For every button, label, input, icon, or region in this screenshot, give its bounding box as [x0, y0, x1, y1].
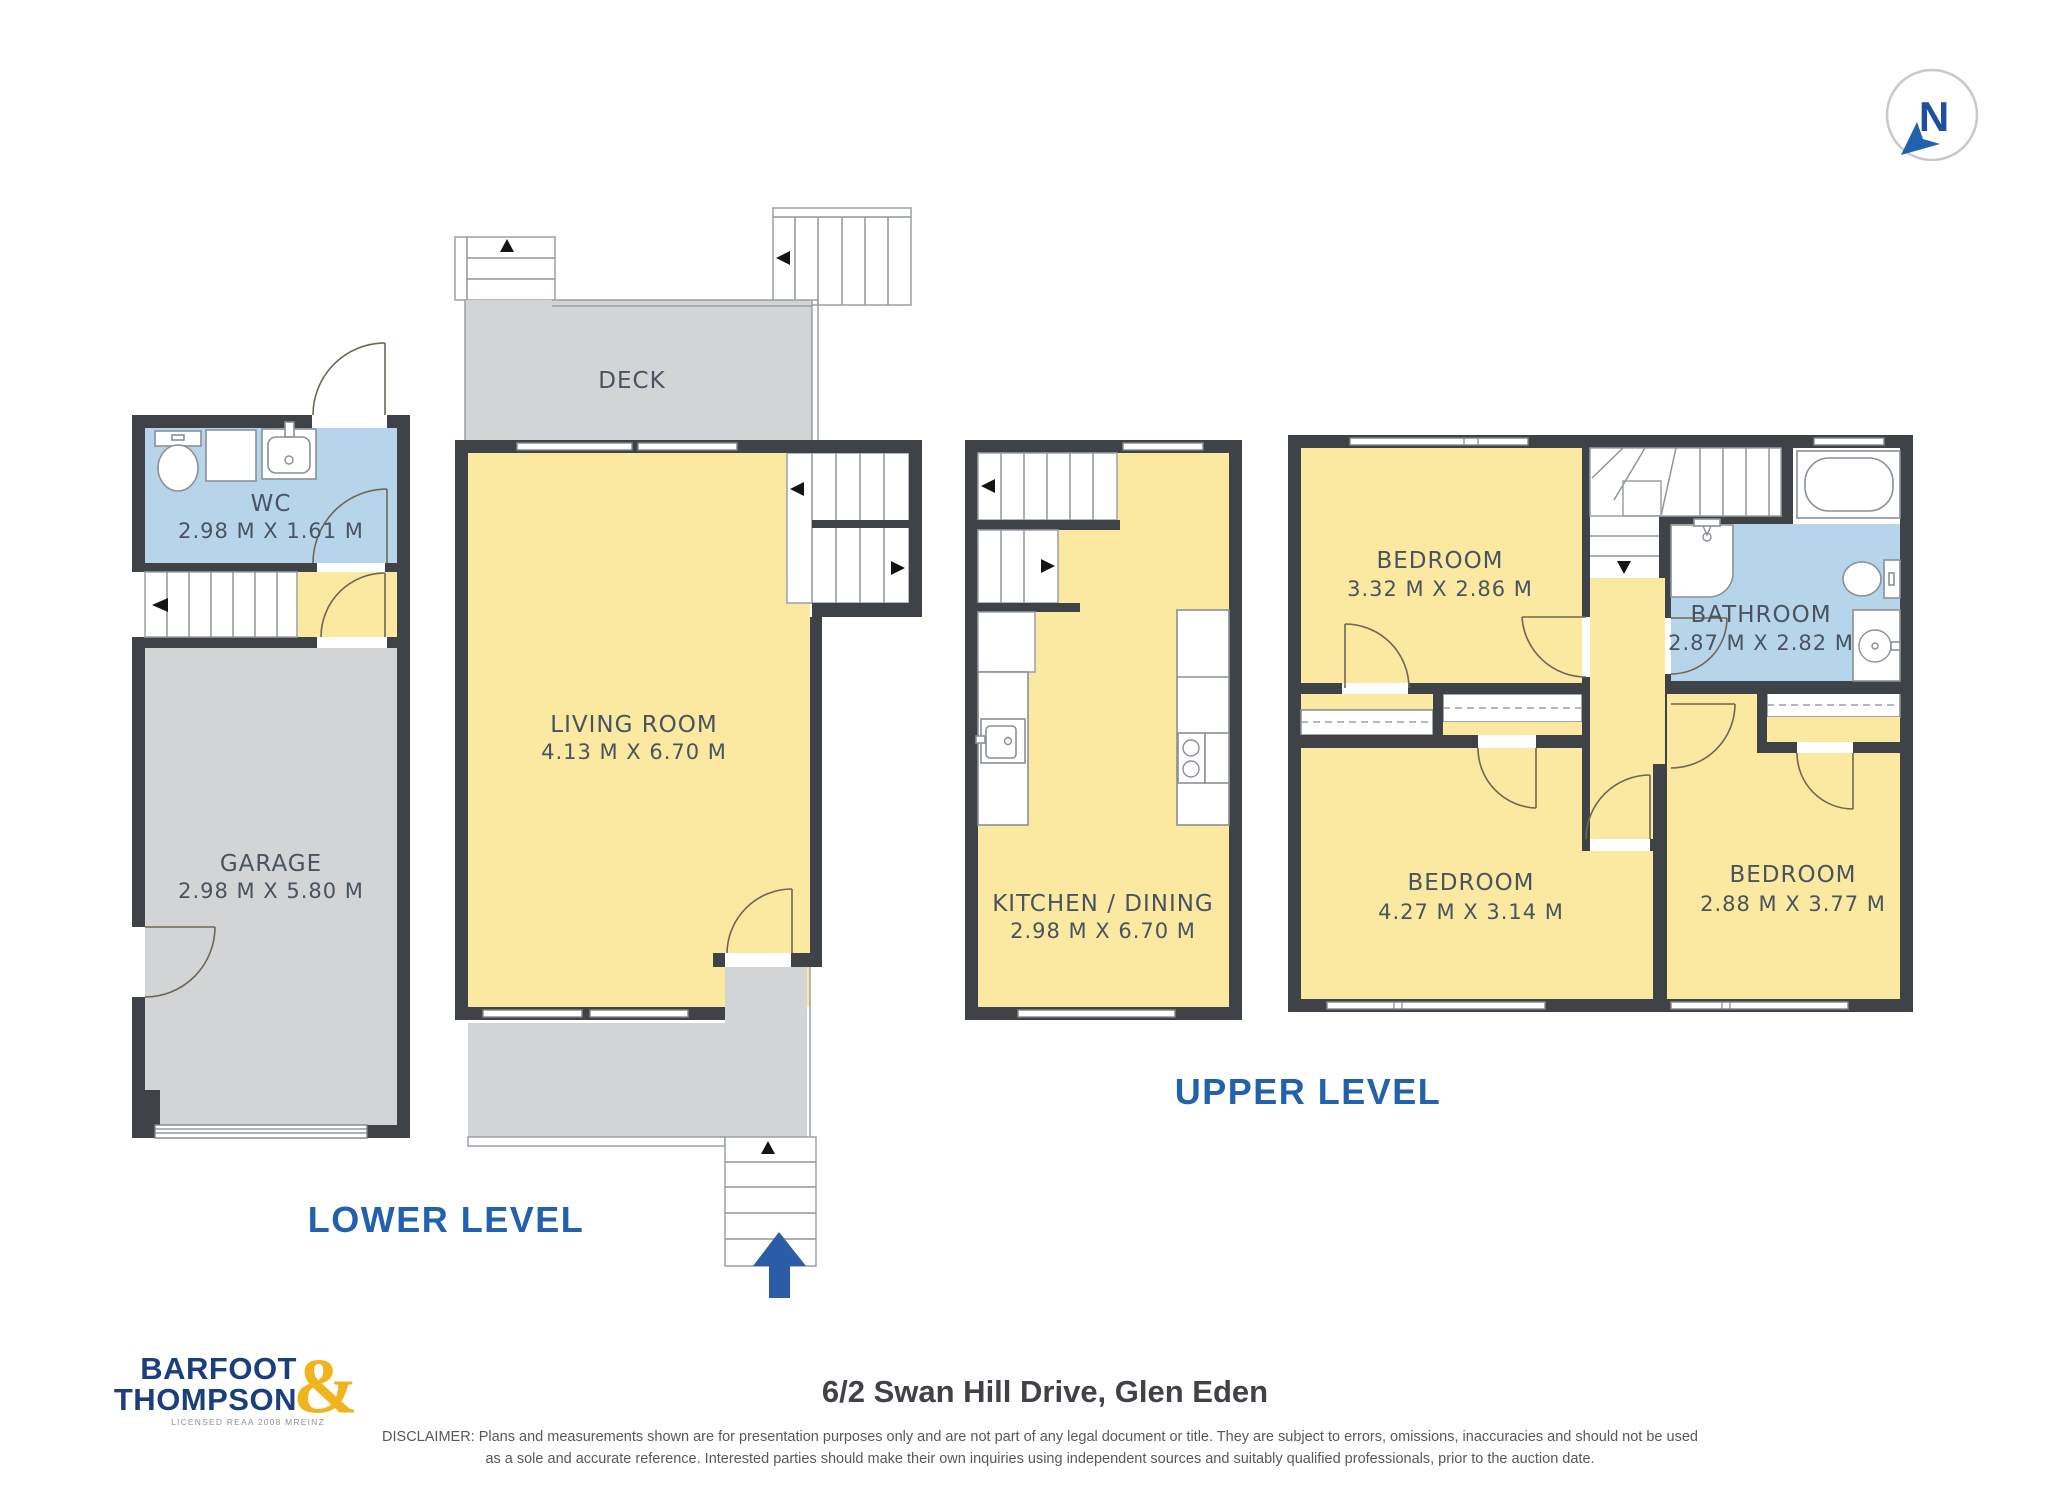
lower-level-living-unit: DECK: [455, 208, 922, 1298]
entry-door-wc-unit: [313, 343, 385, 415]
lower-level-label: LOWER LEVEL: [308, 1199, 585, 1240]
room-dims-bedroom2: 4.27 M X 3.14 M: [1378, 900, 1564, 924]
room-dims-bedroom3: 2.88 M X 3.77 M: [1700, 892, 1886, 916]
wardrobe-middle: [1443, 694, 1582, 722]
room-label-bedroom1: BEDROOM: [1376, 548, 1503, 574]
room-label-deck: DECK: [598, 368, 665, 394]
upper-stairs-floor: [1590, 448, 1781, 516]
room-label-kitchen: KITCHEN / DINING: [992, 891, 1214, 917]
kitchen-pantry: [978, 612, 1035, 672]
kitchen-stairs-upper: [978, 453, 1117, 520]
wc-sink-icon: [262, 422, 316, 479]
bedroom3-floor-lobe: [1667, 694, 1757, 999]
shower-icon: [1671, 519, 1733, 597]
kitchen-counter-right: [1177, 610, 1229, 825]
kitchen-window-bottom: [1018, 1010, 1175, 1017]
room-label-bedroom2: BEDROOM: [1407, 870, 1534, 896]
room-label-living: LIVING ROOM: [550, 712, 718, 738]
room-dims-garage: 2.98 M X 5.80 M: [178, 879, 364, 903]
upper-level-unit: BEDROOM 3.32 M X 2.86 M BATHROOM 2.87 M …: [1288, 435, 1913, 1012]
room-label-bathroom: BATHROOM: [1690, 602, 1831, 628]
deck-sliding-doors: [517, 443, 737, 450]
disclaimer-line2: as a sole and accurate reference. Intere…: [485, 1451, 1594, 1467]
room-dims-bedroom1: 3.32 M X 2.86 M: [1347, 577, 1533, 601]
garage-roller-door: [155, 1125, 367, 1138]
deck-stairs-right: [773, 208, 911, 305]
room-label-garage: GARAGE: [220, 851, 322, 877]
floor-plan-page: N: [0, 0, 2048, 1494]
compass: N: [1887, 70, 1977, 160]
upper-level-label: UPPER LEVEL: [1175, 1071, 1442, 1112]
logo-line1: BARFOOT: [140, 1351, 297, 1386]
toilet-upper-icon: [1843, 560, 1900, 598]
room-dims-living: 4.13 M X 6.70 M: [541, 740, 727, 764]
lower-level-garage-unit: WC 2.98 M X 1.61 M GARAGE 2.98 M X 5.80 …: [132, 343, 410, 1138]
compass-north-label: N: [1919, 93, 1949, 140]
lower-landing-floor: [297, 572, 397, 637]
room-dims-wc: 2.98 M X 1.61 M: [178, 519, 364, 543]
room-label-bedroom3: BEDROOM: [1729, 862, 1856, 888]
logo-ampersand: &: [293, 1342, 358, 1429]
brand-logo: BARFOOT THOMPSON & LICENSED REAA 2008 MR…: [114, 1342, 358, 1429]
stove-icon: [1178, 733, 1229, 783]
kitchen-counter-left: [976, 672, 1028, 825]
bathtub-icon: [1797, 451, 1900, 518]
kitchen-sink-icon: [976, 719, 1025, 763]
kitchen-stairs-lower: [978, 530, 1058, 603]
room-dims-kitchen: 2.98 M X 6.70 M: [1010, 919, 1196, 943]
disclaimer-line1: DISCLAIMER: Plans and measurements shown…: [382, 1429, 1698, 1445]
room-label-wc: WC: [251, 491, 292, 517]
room-dims-bathroom: 2.87 M X 2.82 M: [1668, 631, 1854, 655]
entry-floor: [725, 967, 807, 1023]
property-address: 6/2 Swan Hill Drive, Glen Eden: [822, 1374, 1268, 1409]
logo-line2: THOMPSON: [114, 1382, 297, 1417]
porch-edge: [468, 1137, 725, 1146]
lower-level-kitchen-unit: KITCHEN / DINING 2.98 M X 6.70 M: [965, 440, 1242, 1020]
logo-tagline: LICENSED REAA 2008 MREINZ: [171, 1417, 325, 1427]
kitchen-window-top: [1123, 443, 1203, 450]
toilet-icon: [155, 431, 201, 491]
deck-stairs-left: [455, 237, 555, 300]
vanity-icon: [1853, 610, 1900, 681]
wc-cabinet-icon: [206, 430, 256, 481]
patio-floor: [468, 1023, 807, 1137]
